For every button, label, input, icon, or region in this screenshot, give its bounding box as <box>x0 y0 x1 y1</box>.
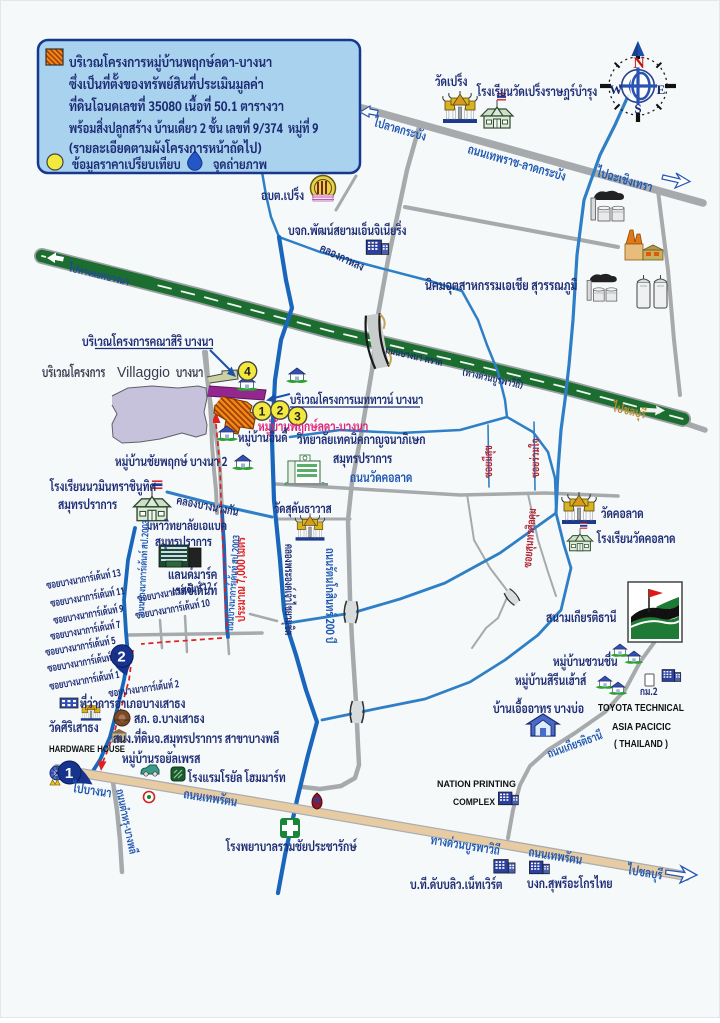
svg-text:NATION PRINTING: NATION PRINTING <box>437 779 516 790</box>
svg-text:N: N <box>633 55 645 72</box>
svg-text:S: S <box>634 101 641 116</box>
svg-text:ASIA PACICIC: ASIA PACICIC <box>612 722 671 733</box>
svg-text:E: E <box>657 82 666 97</box>
svg-text:HARDWARE HOUSE: HARDWARE HOUSE <box>49 744 125 755</box>
svg-text:3: 3 <box>294 409 301 423</box>
svg-text:4: 4 <box>244 364 251 378</box>
svg-text:Villaggio: Villaggio <box>117 365 170 381</box>
svg-text:W: W <box>610 82 623 97</box>
svg-text:2: 2 <box>277 403 284 417</box>
svg-text:1: 1 <box>259 404 266 418</box>
svg-text:( THAILAND ): ( THAILAND ) <box>614 739 668 750</box>
svg-text:2: 2 <box>117 649 125 666</box>
svg-text:TOYOTA TECHNICAL: TOYOTA TECHNICAL <box>598 703 684 714</box>
svg-text:COMPLEX: COMPLEX <box>453 797 496 808</box>
svg-text:1: 1 <box>65 765 73 782</box>
